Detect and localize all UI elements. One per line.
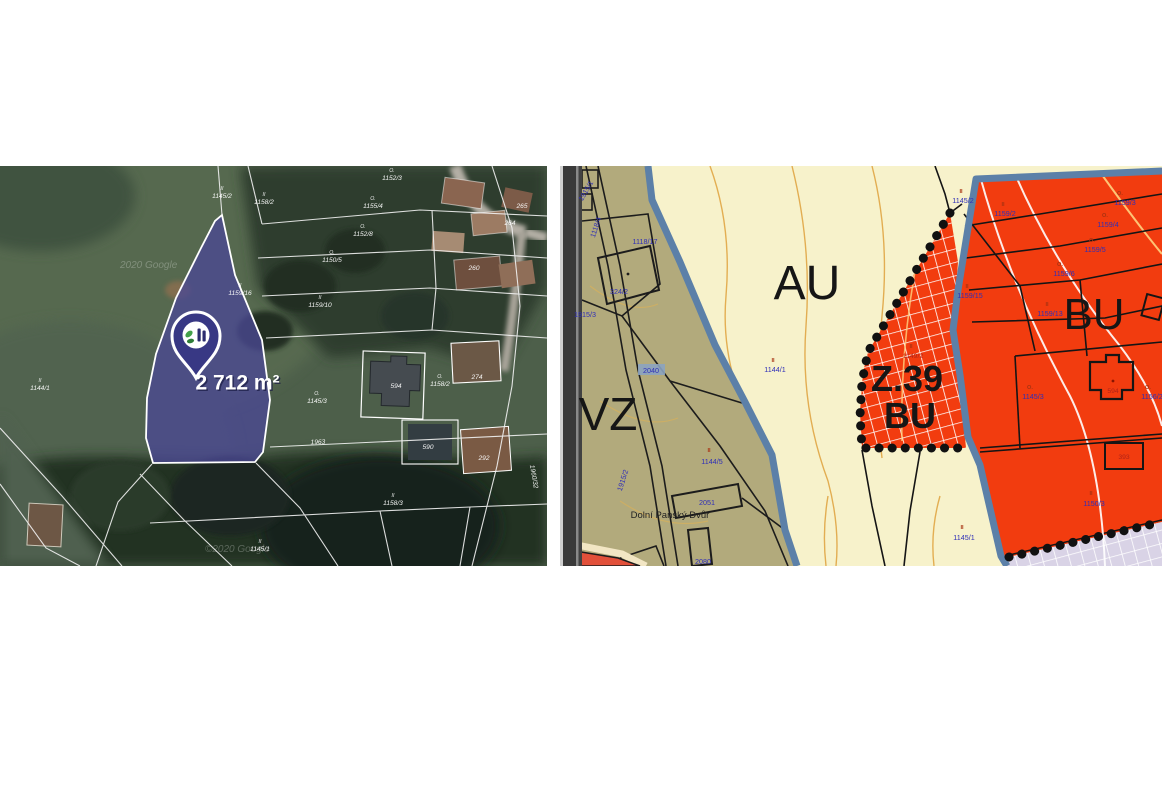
zone-label-z39: Z.39 bbox=[871, 358, 943, 399]
parcel-label: 274 bbox=[470, 374, 482, 381]
svg-text:O.: O. bbox=[314, 391, 319, 397]
svg-text:590: 590 bbox=[422, 444, 433, 451]
house-590 bbox=[408, 424, 452, 460]
svg-text:1145/1: 1145/1 bbox=[953, 533, 974, 542]
zoning-map: AU BU Z.39 BU VZ Dolní Panský Dvůr 1118/… bbox=[560, 166, 1162, 566]
parcel-label: 324/2 bbox=[610, 287, 628, 296]
parcel-label: 264 bbox=[503, 220, 515, 227]
strip-dark bbox=[579, 166, 583, 566]
svg-text:1150/5: 1150/5 bbox=[322, 257, 342, 264]
svg-text:O.: O. bbox=[1102, 213, 1108, 219]
zone-label-bu: BU bbox=[1063, 290, 1124, 339]
svg-text:2080: 2080 bbox=[695, 557, 711, 566]
svg-text:1159/3: 1159/3 bbox=[1114, 198, 1135, 207]
svg-text:1915/3: 1915/3 bbox=[574, 310, 596, 319]
svg-text:O.: O. bbox=[1089, 238, 1095, 244]
svg-text:O.: O. bbox=[1145, 385, 1151, 391]
building-roof bbox=[454, 256, 502, 290]
svg-text:1155/4: 1155/4 bbox=[363, 203, 383, 210]
svg-text:O.: O. bbox=[437, 374, 442, 380]
svg-text:1159/2: 1159/2 bbox=[994, 209, 1015, 218]
svg-text:265: 265 bbox=[515, 203, 527, 210]
area-label: 2 712 m² 2 712 m² bbox=[195, 372, 281, 397]
watermark: 2020 Google bbox=[119, 260, 178, 271]
parcel-label: 1963 bbox=[310, 439, 325, 447]
svg-text:1159/13: 1159/13 bbox=[1037, 309, 1062, 318]
svg-text:1145/3: 1145/3 bbox=[1022, 392, 1043, 401]
svg-text:324/2: 324/2 bbox=[610, 287, 628, 296]
svg-text:1159/16: 1159/16 bbox=[228, 290, 252, 297]
parcel-label: 393 bbox=[1118, 454, 1130, 461]
svg-text:1159/15: 1159/15 bbox=[957, 291, 982, 300]
svg-text:O.: O. bbox=[370, 196, 375, 202]
building-dot bbox=[1112, 380, 1115, 383]
svg-text:II: II bbox=[960, 525, 964, 531]
parcel-label: 594 bbox=[390, 383, 401, 390]
svg-text:O.: O. bbox=[1027, 385, 1033, 391]
zoning-map-panel: AU BU Z.39 BU VZ Dolní Panský Dvůr 1118/… bbox=[560, 166, 1162, 566]
svg-text:1145/1: 1145/1 bbox=[250, 546, 270, 553]
svg-text:O.: O. bbox=[329, 250, 334, 256]
svg-text:594: 594 bbox=[390, 383, 401, 390]
tree-clump bbox=[70, 461, 170, 531]
parcel-label: 260 bbox=[467, 265, 479, 272]
shed-roof bbox=[27, 503, 63, 547]
strip-mid bbox=[576, 166, 579, 566]
parcel-label: 590 bbox=[422, 444, 433, 451]
parcel-label: 265 bbox=[515, 203, 527, 210]
map-edge-strip bbox=[560, 166, 582, 566]
logo-bar bbox=[203, 331, 206, 342]
svg-text:1149/2: 1149/2 bbox=[903, 353, 924, 360]
parcel-label: 1118/17 bbox=[633, 237, 658, 246]
house-292 bbox=[461, 426, 512, 473]
road bbox=[525, 232, 547, 238]
parcel-label: 292 bbox=[477, 455, 489, 462]
svg-text:II: II bbox=[1045, 302, 1049, 308]
building-dot bbox=[627, 273, 630, 276]
svg-text:292: 292 bbox=[477, 455, 489, 462]
svg-text:274: 274 bbox=[470, 374, 482, 381]
svg-text:1159/10: 1159/10 bbox=[308, 302, 332, 309]
svg-text:594: 594 bbox=[1107, 388, 1119, 395]
svg-text:1158/2: 1158/2 bbox=[254, 199, 274, 206]
svg-text:1144/5: 1144/5 bbox=[701, 457, 722, 466]
satellite-map: 2020 Google ©2020 Google II1145/2 II1158… bbox=[0, 166, 547, 566]
svg-text:1159/5: 1159/5 bbox=[1084, 245, 1105, 254]
svg-text:260: 260 bbox=[467, 265, 479, 272]
svg-text:1118/17: 1118/17 bbox=[633, 237, 658, 246]
parcel-label: 1915/3 bbox=[574, 310, 596, 319]
svg-text:1963: 1963 bbox=[310, 439, 325, 447]
logo-bar bbox=[198, 329, 201, 342]
svg-text:1145/2: 1145/2 bbox=[212, 193, 232, 200]
svg-text:O.: O. bbox=[389, 168, 394, 174]
svg-text:II: II bbox=[771, 358, 775, 364]
zone-label-au: AU bbox=[774, 257, 841, 310]
building-roof bbox=[441, 177, 484, 208]
svg-text:O.: O. bbox=[1057, 262, 1063, 268]
svg-text:II: II bbox=[909, 344, 913, 350]
building-roof bbox=[431, 231, 464, 253]
svg-text:393: 393 bbox=[1118, 454, 1130, 461]
svg-text:2051: 2051 bbox=[699, 498, 715, 507]
svg-text:1158/2: 1158/2 bbox=[430, 381, 450, 388]
satellite-map-panel: 2020 Google ©2020 Google II1145/2 II1158… bbox=[0, 166, 547, 566]
svg-text:2040: 2040 bbox=[643, 366, 659, 375]
tree-clump bbox=[381, 292, 449, 340]
strip-light bbox=[560, 166, 563, 566]
zone-label-z39-bu: BU bbox=[884, 395, 936, 436]
parcel-label: 2080 bbox=[695, 557, 711, 566]
svg-text:1144/1: 1144/1 bbox=[764, 365, 785, 374]
page: { "left_map": { "area_label": "2 712 m²"… bbox=[0, 0, 1162, 800]
parcel-label: 594 bbox=[1107, 388, 1119, 395]
svg-text:1156/2: 1156/2 bbox=[1141, 392, 1162, 401]
svg-text:II: II bbox=[1001, 202, 1005, 208]
satellite-terrain bbox=[0, 166, 547, 566]
parcel-label: 2051 bbox=[699, 498, 715, 507]
svg-text:1144/1: 1144/1 bbox=[30, 385, 50, 392]
svg-text:II: II bbox=[965, 284, 969, 290]
svg-text:O.: O. bbox=[1117, 191, 1123, 197]
svg-text:1159/6: 1159/6 bbox=[1053, 269, 1074, 278]
svg-text:1152/8: 1152/8 bbox=[353, 231, 373, 238]
svg-text:II: II bbox=[959, 189, 963, 195]
svg-text:II: II bbox=[1089, 491, 1093, 497]
svg-text:1158/3: 1158/3 bbox=[383, 500, 403, 507]
svg-text:1145/3: 1145/3 bbox=[307, 398, 327, 405]
svg-text:II: II bbox=[707, 448, 711, 454]
svg-text:1159/4: 1159/4 bbox=[1097, 220, 1118, 229]
zone-label-vz: VZ bbox=[579, 388, 638, 440]
svg-text:1145/2: 1145/2 bbox=[952, 196, 973, 205]
svg-text:264: 264 bbox=[503, 220, 515, 227]
svg-text:O.: O. bbox=[360, 224, 365, 230]
area-label-text: 2 712 m² bbox=[195, 372, 279, 395]
svg-text:1152/3: 1152/3 bbox=[382, 175, 402, 182]
strip-dark bbox=[563, 166, 576, 566]
parcel-label-highlighted: 2040 bbox=[643, 366, 659, 375]
svg-text:1150/3: 1150/3 bbox=[1083, 499, 1104, 508]
place-label: Dolní Panský Dvůr bbox=[631, 510, 710, 521]
